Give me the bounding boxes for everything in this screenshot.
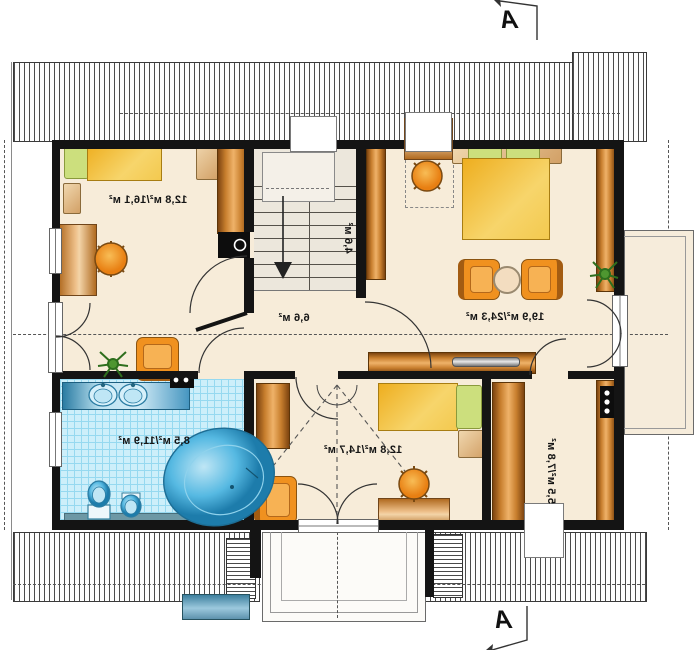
label-bedroom-top-left: 12,8 м²/16,1 м² [109,194,188,206]
stair-arrow-head [274,262,292,279]
meter-dot-1 [174,378,179,383]
bathtub-icon [151,414,287,540]
door-arc-french-bottom-left [298,484,338,524]
desk-chair-top-left-icon [95,241,127,277]
label-bedroom-bottom: 12,8 м²/14,7 м² [324,444,403,456]
door-arc-large-room [365,302,431,368]
door-arc-left-french-top [56,303,90,337]
section-marker-top: A [500,6,518,35]
meter-dot-2 [184,378,189,383]
sink-left-icon [89,383,117,406]
door-arc-bathroom [199,328,244,373]
section-marker-bottom: A [494,606,512,635]
door-arc-left-french-bottom [56,336,90,370]
sink-right-icon [119,383,147,406]
door-arc-wardrobe-room [530,339,566,375]
plant-hall-icon [98,352,128,377]
toilet-icon [88,481,110,519]
label-bedroom-large: 19,9 м²/24,3 м² [466,311,545,323]
label-bathroom: 8,5 м²/11,9 м² [118,435,190,447]
door-arc-bottom-bedroom [296,377,338,419]
door-arc-balcony-top [587,300,621,334]
plan-linework [0,0,700,650]
plant-large-room-icon [590,262,618,288]
section-arrow-bottom [486,644,493,650]
label-hallway: 6,6 м² [278,312,309,324]
door-arc-balcony-bottom [587,333,621,367]
radiator-dot-2 [604,399,609,404]
radiator-dot-3 [604,408,609,413]
radiator-dot-1 [604,390,609,395]
door-arc-french-bottom-right [337,484,377,524]
bidet-icon [121,493,141,517]
label-wardrobe-room: 5,5 м²/7,8 м² [545,438,557,504]
floor-plan: 12,8 м²/16,1 м² 4,6 м² 19,9 м²/24,3 м² 6… [0,0,700,650]
tv-unit-detail [235,240,246,251]
desk-chair-bottom-room-icon [399,466,429,502]
desk-chair-large-room-icon [412,161,442,191]
door-arc-top-left-bedroom [190,256,247,313]
label-staircase: 4,6 м² [342,222,354,253]
door-leaf-top-left-bedroom [196,313,247,330]
